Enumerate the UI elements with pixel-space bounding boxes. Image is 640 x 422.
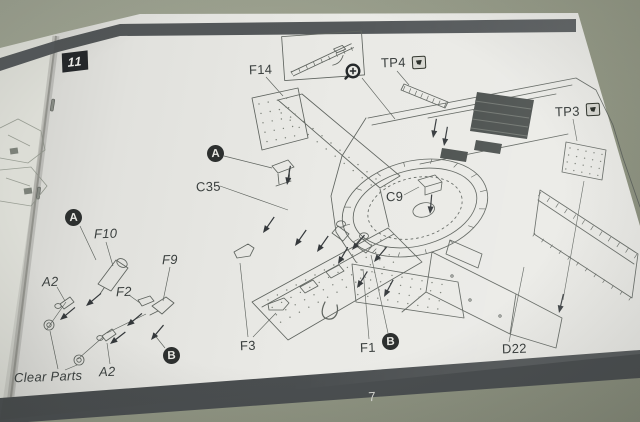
tape-symbol-icon xyxy=(586,103,601,117)
tape-symbol-glyph xyxy=(590,107,596,112)
part-label-f2: F2 xyxy=(116,284,132,300)
step-number-box: 11 xyxy=(62,50,88,72)
magnifier-icon xyxy=(346,65,360,79)
part-label-f10: F10 xyxy=(94,226,118,242)
part-label-f14: F14 xyxy=(249,62,273,78)
tape-symbol-glyph xyxy=(416,60,422,65)
photo-of-instruction-page: 11 F14 TP4 TP3 C35 C9 F10 A2 F2 F9 F3 F1… xyxy=(0,0,640,422)
step-number: 11 xyxy=(67,54,82,70)
part-label-f3: F3 xyxy=(240,338,256,354)
part-label-a2-upper: A2 xyxy=(42,274,59,290)
clear-parts-label: Clear Parts xyxy=(14,368,83,385)
part-label-c35: C35 xyxy=(196,179,221,195)
tape-symbol-icon xyxy=(412,56,427,70)
part-label-tp4: TP4 xyxy=(381,55,406,71)
part-label-c9: C9 xyxy=(386,189,404,205)
page-number: 7 xyxy=(362,388,383,404)
part-label-d22: D22 xyxy=(502,341,527,357)
part-label-a2-lower: A2 xyxy=(99,364,116,380)
instruction-line-art xyxy=(0,0,640,422)
part-label-tp3: TP3 xyxy=(555,104,580,120)
part-label-f1: F1 xyxy=(360,340,376,356)
part-label-f9: F9 xyxy=(162,252,178,268)
